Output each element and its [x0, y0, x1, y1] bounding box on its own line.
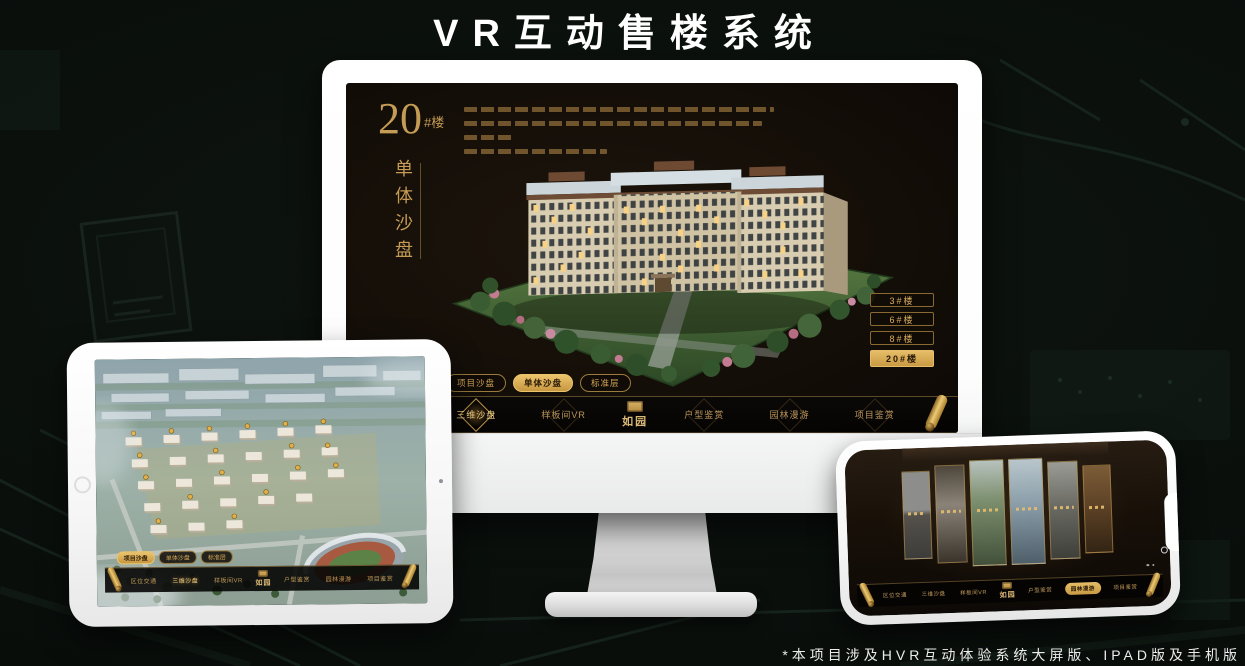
phone-device: 区位交通 三维沙盘 样板间VR 如园 户型鉴赏 园林漫游 项目鉴赏 [835, 430, 1181, 626]
block-number: 20 [378, 97, 422, 141]
nav-item-location[interactable]: 区位交通 [128, 574, 160, 587]
camera-icon [1161, 546, 1168, 553]
floor-button-8[interactable]: 8#楼 [870, 331, 934, 345]
sub-tab-single-sandbox[interactable]: 单体沙盘 [513, 374, 573, 392]
nav-item-showroom-vr[interactable]: 样板间VR [958, 586, 989, 599]
brand-logo[interactable]: 如园 [999, 582, 1016, 601]
gallery-panel[interactable] [934, 464, 967, 563]
page-title: VR互动售楼系统 [0, 2, 1245, 57]
brand-logo-text: 如园 [622, 413, 648, 429]
seal-icon [627, 401, 643, 412]
nav-item-floorplan[interactable]: 户型鉴赏 [1026, 583, 1054, 596]
floor-button-3[interactable]: 3#楼 [870, 293, 934, 307]
monitor-stand-base [545, 592, 757, 617]
sub-tab-project-sandbox[interactable]: 项目沙盘 [117, 551, 155, 564]
gallery-panel[interactable] [1008, 458, 1046, 565]
brand-logo[interactable]: 如园 [255, 570, 271, 588]
phone-navbar: 区位交通 三维沙盘 样板间VR 如园 户型鉴赏 园林漫游 项目鉴赏 [857, 574, 1164, 608]
scroll-icon[interactable] [401, 563, 417, 588]
scroll-icon[interactable] [924, 393, 949, 430]
brand-logo-text: 如园 [999, 590, 1015, 601]
scene-gallery [901, 452, 1114, 571]
nav-item-3d-sandbox[interactable]: 三维沙盘 [447, 403, 505, 426]
phone-screen: 区位交通 三维沙盘 样板间VR 如园 户型鉴赏 园林漫游 项目鉴赏 [844, 439, 1172, 616]
footnote-text: *本项目涉及HVR互动体验系统大屏版、IPAD版及手机版 [782, 645, 1241, 665]
block-unit-label: #楼 [424, 112, 444, 131]
nav-item-project-view[interactable]: 项目鉴赏 [1111, 580, 1139, 593]
ipad-device: 项目沙盘 单体沙盘 标准层 区位交通 三维沙盘 样板间VR 如园 户型鉴赏 园林… [67, 339, 454, 627]
sub-tab-standard-floor[interactable]: 标准层 [580, 374, 631, 392]
nav-item-project-view[interactable]: 项目鉴赏 [364, 571, 396, 584]
gallery-panel[interactable] [901, 471, 932, 560]
scroll-icon[interactable] [858, 582, 875, 607]
nav-item-project-view[interactable]: 项目鉴赏 [846, 403, 904, 426]
floor-button-group: 3#楼 6#楼 8#楼 20#楼 [870, 293, 934, 367]
ipad-sub-tabs: 项目沙盘 单体沙盘 标准层 [117, 550, 233, 564]
floor-button-6[interactable]: 6#楼 [870, 312, 934, 326]
block-title: 20#楼 [378, 97, 444, 141]
ipad-screen: 项目沙盘 单体沙盘 标准层 区位交通 三维沙盘 样板间VR 如园 户型鉴赏 园林… [95, 356, 428, 606]
sub-tab-project-sandbox[interactable]: 项目沙盘 [446, 374, 506, 392]
gallery-panel[interactable] [969, 459, 1007, 566]
notch [1164, 493, 1179, 551]
page-indicator [1146, 563, 1154, 566]
nav-item-3d-sandbox[interactable]: 三维沙盘 [169, 573, 201, 586]
scroll-icon[interactable] [1146, 572, 1161, 597]
seal-icon [1002, 582, 1012, 589]
sub-tab-standard-floor[interactable]: 标准层 [201, 550, 233, 563]
camera-icon [439, 479, 443, 483]
scroll-icon[interactable] [106, 566, 122, 591]
ipad-navbar: 区位交通 三维沙盘 样板间VR 如园 户型鉴赏 园林漫游 项目鉴赏 [105, 564, 419, 592]
nav-item-showroom-vr[interactable]: 样板间VR [211, 573, 246, 586]
nav-item-floorplan[interactable]: 户型鉴赏 [281, 572, 313, 585]
nav-item-3d-sandbox[interactable]: 三维沙盘 [919, 587, 947, 600]
brand-logo-text: 如园 [255, 578, 271, 588]
nav-item-garden-roam[interactable]: 园林漫游 [761, 403, 819, 426]
nav-item-garden-roam[interactable]: 园林漫游 [323, 572, 355, 585]
block-subtitle-vertical: 单体沙盘 [390, 159, 416, 319]
sub-tab-single-sandbox[interactable]: 单体沙盘 [159, 551, 197, 564]
vertical-divider [420, 163, 421, 259]
sandbox-sub-tabs: 项目沙盘 单体沙盘 标准层 [446, 374, 631, 392]
brand-logo[interactable]: 如园 [622, 401, 648, 429]
floor-button-20[interactable]: 20#楼 [870, 350, 934, 367]
home-button[interactable] [74, 476, 91, 493]
nav-item-garden-roam[interactable]: 园林漫游 [1065, 582, 1101, 595]
monitor-stand-neck [587, 513, 717, 595]
nav-item-location[interactable]: 区位交通 [881, 589, 909, 602]
nav-item-floorplan[interactable]: 户型鉴赏 [675, 403, 733, 426]
building-model-graphic [442, 153, 894, 389]
gallery-panel[interactable] [1082, 464, 1113, 553]
nav-item-showroom-vr[interactable]: 样板间VR [532, 403, 595, 426]
seal-icon [258, 570, 268, 577]
gallery-panel[interactable] [1047, 461, 1080, 560]
